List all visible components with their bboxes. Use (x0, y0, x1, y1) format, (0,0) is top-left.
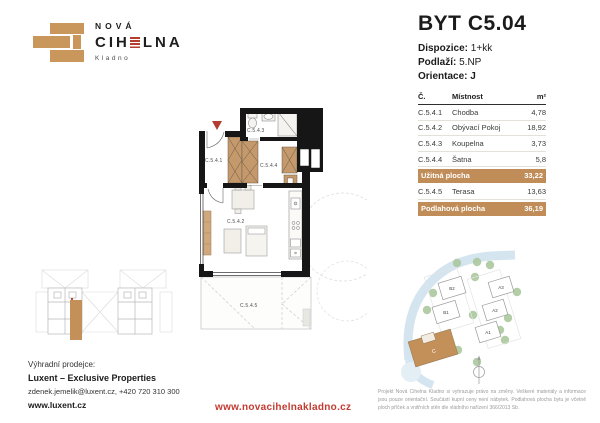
entrance-marker-icon (212, 121, 222, 130)
room-code: C.5.4.3 (418, 139, 452, 148)
room-area: 3,73 (518, 139, 546, 148)
room-area: 18,92 (518, 123, 546, 132)
brand-cihelna-post: LNA (143, 34, 183, 51)
shaft-niche (311, 149, 320, 168)
site-plan: B2 B1 A3 A2 A1 C (395, 232, 587, 390)
seller-label: Výhradní prodejce: (28, 360, 180, 369)
spec-dispozice-label: Dispozice: (418, 43, 468, 54)
room-label-bath: C.5.4.3 (247, 128, 265, 134)
spec-orientace-value: J (470, 71, 476, 82)
seller-website-link[interactable]: www.luxent.cz (28, 400, 180, 410)
room-name: Koupelna (452, 139, 518, 148)
disclaimer-text: Projekt Nová Cihelna Kladno si vyhrazuje… (378, 389, 586, 412)
floor-area-value: 36,19 (524, 204, 543, 213)
wardrobe-hatch (228, 137, 297, 186)
floor-plan: C.5.4.1 C.5.4.3 C.5.4.4 C.5.4.2 C.5.4.5 (185, 95, 367, 345)
floor-keyplan (28, 262, 180, 358)
floor-area-row: Podlahová plocha 36,19 (418, 202, 546, 216)
highlighted-unit (70, 300, 82, 340)
table-row: C.5.4.1 Chodba 4,78 (418, 105, 546, 121)
room-name: Obývací Pokoj (452, 123, 518, 132)
room-table: Č. Místnost m² C.5.4.1 Chodba 4,78 C.5.4… (418, 92, 546, 217)
room-name: Šatna (452, 155, 518, 164)
room-name: Terasa (452, 187, 518, 196)
seller-block: Výhradní prodejce: Luxent – Exclusive Pr… (28, 360, 180, 410)
usable-area-row: Užitná plocha 33,22 (418, 169, 546, 183)
building-label-b2: B2 (449, 286, 455, 291)
table-row: C.5.4.5 Terasa 13,63 (418, 185, 546, 201)
room-code: C.5.4.1 (418, 108, 452, 117)
table-row: C.5.4.3 Koupelna 3,73 (418, 136, 546, 152)
room-label-terrace: C.5.4.5 (240, 303, 258, 309)
spec-podlazi-value: 5.NP (459, 57, 481, 68)
room-area: 13,63 (518, 187, 546, 196)
room-code: C.5.4.2 (418, 123, 452, 132)
room-area: 4,78 (518, 108, 546, 117)
room-code: C.5.4.4 (418, 155, 452, 164)
table-row: C.5.4.2 Obývací Pokoj 18,92 (418, 121, 546, 137)
brick-e-icon (130, 37, 140, 48)
building-label-a1: A1 (485, 330, 491, 335)
brochure-page: NOVÁ CIH LNA Kladno BYT C5.04 Dispozice:… (0, 0, 600, 423)
unit-title: BYT C5.04 (418, 12, 526, 36)
table-header: Č. Místnost m² (418, 92, 546, 105)
spec-dispozice: Dispozice: 1+kk (418, 42, 492, 56)
spec-orientace-label: Orientace: (418, 71, 467, 82)
brand-cihelna-pre: CIH (95, 34, 130, 51)
col-room: Místnost (452, 92, 518, 101)
brand-cihelna: CIH LNA (95, 34, 183, 51)
spec-podlazi: Podlaží: 5.NP (418, 56, 492, 70)
room-label-closet: C.5.4.4 (260, 163, 278, 169)
spec-podlazi-label: Podlaží: (418, 57, 456, 68)
building-label-a3: A3 (498, 285, 504, 290)
spec-orientace: Orientace: J (418, 70, 492, 84)
kitchen-unit-icon (289, 191, 302, 259)
room-name: Chodba (452, 108, 518, 117)
floor-area-label: Podlahová plocha (421, 204, 485, 213)
usable-area-value: 33,22 (524, 171, 543, 180)
unit-specs: Dispozice: 1+kk Podlaží: 5.NP Orientace:… (418, 42, 492, 84)
shaft-niche (300, 149, 309, 166)
unit-dot-icon (71, 298, 73, 300)
seller-name: Luxent – Exclusive Properties (28, 373, 180, 383)
highlighted-building-c: C (408, 327, 458, 367)
spec-dispozice-value: 1+kk (471, 43, 492, 54)
project-website-link[interactable]: www.novacihelnakladno.cz (215, 402, 351, 413)
col-code: Č. (418, 92, 452, 101)
room-label-living: C.5.4.2 (227, 219, 245, 225)
seller-contact[interactable]: zdenek.jemelik@luxent.cz, +420 720 310 3… (28, 387, 180, 396)
brand-brick-icon (30, 14, 86, 66)
brand-wordmark: NOVÁ CIH LNA Kladno (95, 21, 183, 62)
room-code: C.5.4.5 (418, 187, 452, 196)
col-area: m² (518, 92, 546, 101)
room-area: 5,8 (518, 155, 546, 164)
brand-nova: NOVÁ (95, 21, 183, 31)
building-label-a2: A2 (492, 308, 498, 313)
brand-city: Kladno (95, 55, 183, 62)
usable-area-label: Užitná plocha (421, 171, 470, 180)
table-row: C.5.4.4 Šatna 5,8 (418, 152, 546, 168)
building-label-b1: B1 (443, 310, 449, 315)
room-label-hall: C.5.4.1 (205, 158, 223, 164)
